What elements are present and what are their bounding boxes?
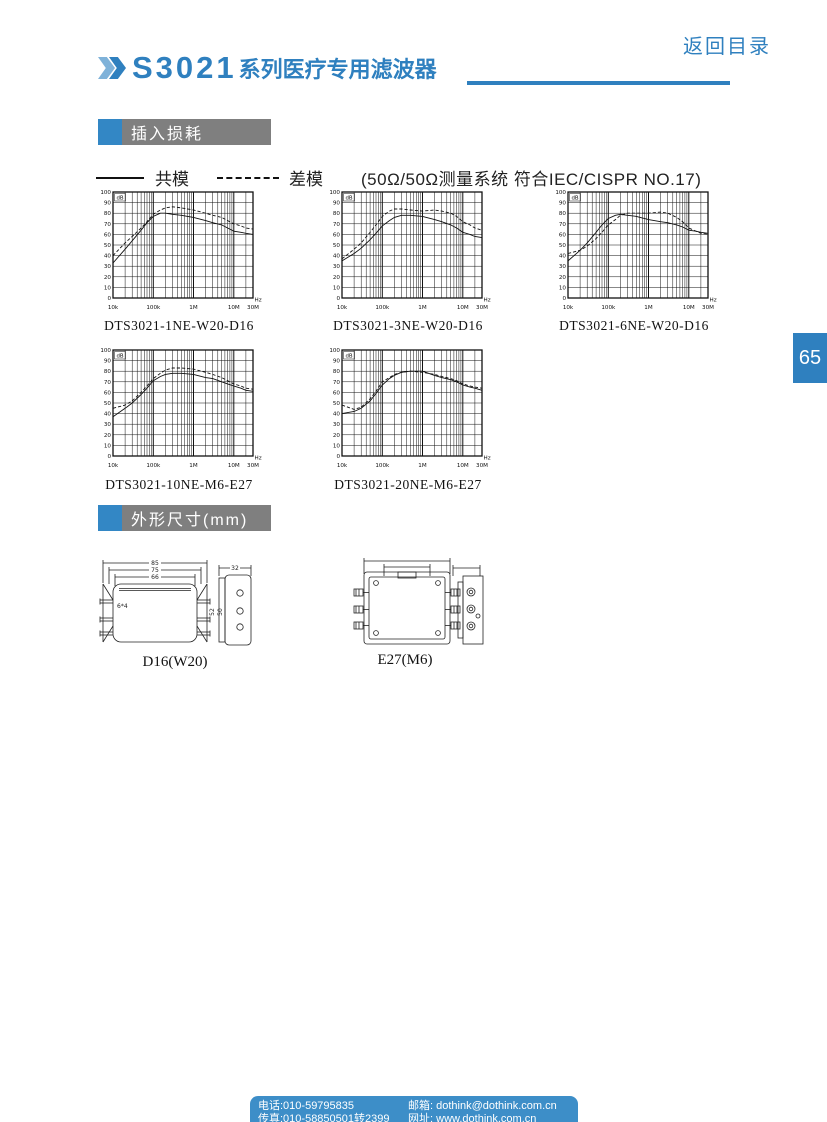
svg-text:10k: 10k [108, 305, 119, 311]
svg-text:20: 20 [333, 433, 341, 439]
svg-text:100k: 100k [375, 305, 390, 311]
solid-line-swatch [96, 177, 144, 179]
svg-text:dB: dB [116, 196, 123, 202]
svg-text:10k: 10k [337, 463, 348, 469]
svg-text:30: 30 [104, 264, 112, 270]
svg-text:30M: 30M [476, 305, 488, 311]
svg-text:Hz: Hz [255, 456, 262, 462]
svg-text:20: 20 [104, 433, 112, 439]
svg-text:32: 32 [231, 565, 239, 572]
svg-text:30: 30 [333, 422, 341, 428]
header-underline [467, 81, 730, 85]
legend-differential-mode-label: 差模 [289, 165, 323, 190]
footer-web-label: 网址: [408, 1113, 433, 1122]
footer-email-label: 邮箱: [408, 1100, 433, 1112]
svg-text:10: 10 [104, 443, 112, 449]
svg-text:10k: 10k [108, 463, 119, 469]
svg-text:80: 80 [333, 211, 341, 217]
page-header: S3021 系列医疗专用滤波器 [98, 50, 437, 86]
svg-text:66: 66 [151, 574, 159, 581]
svg-text:50: 50 [333, 401, 341, 407]
svg-text:40: 40 [333, 254, 341, 260]
svg-text:70: 70 [104, 222, 112, 228]
footer-contact-bar: 电话:010-59795835 传真:010-58850501转2399 邮箱:… [250, 1096, 578, 1122]
svg-text:1M: 1M [189, 305, 198, 311]
page-number-badge: 65 [793, 333, 827, 383]
svg-text:Hz: Hz [484, 456, 491, 462]
section-title: 插入损耗 [122, 119, 271, 145]
svg-text:50: 50 [104, 243, 112, 249]
svg-text:70: 70 [104, 380, 112, 386]
insertion-loss-chart: 0102030405060708090100dB10k100k1M10M30MH… [322, 186, 494, 312]
svg-text:100: 100 [555, 190, 566, 196]
svg-text:Hz: Hz [484, 298, 491, 304]
svg-text:10M: 10M [228, 463, 240, 469]
svg-text:0: 0 [107, 454, 111, 460]
svg-text:80: 80 [104, 211, 112, 217]
svg-text:75: 75 [151, 567, 159, 574]
series-code: S3021 [132, 50, 237, 86]
dashed-line-swatch [217, 177, 279, 179]
chart-caption: DTS3021-20NE-M6-E27 [322, 477, 494, 493]
footer-fax: 传真:010-58850501转2399 [258, 1113, 408, 1122]
svg-text:10k: 10k [563, 305, 574, 311]
svg-text:10M: 10M [228, 305, 240, 311]
svg-text:1M: 1M [644, 305, 653, 311]
svg-text:1M: 1M [418, 463, 427, 469]
dimension-drawing-d16: 85 75 66 6*4 32 [95, 556, 255, 651]
svg-text:30M: 30M [476, 463, 488, 469]
svg-text:90: 90 [333, 201, 341, 207]
svg-text:60: 60 [333, 232, 341, 238]
svg-text:0: 0 [336, 296, 340, 302]
svg-text:10M: 10M [457, 463, 469, 469]
chart-caption: DTS3021-1NE-W20-D16 [93, 318, 265, 334]
svg-text:100: 100 [100, 348, 111, 354]
svg-text:0: 0 [562, 296, 566, 302]
svg-text:85: 85 [151, 560, 159, 567]
svg-text:10: 10 [104, 285, 112, 291]
svg-text:60: 60 [559, 232, 567, 238]
svg-text:100k: 100k [146, 463, 161, 469]
svg-text:40: 40 [333, 412, 341, 418]
svg-text:10M: 10M [683, 305, 695, 311]
svg-text:10: 10 [559, 285, 567, 291]
svg-text:40: 40 [104, 254, 112, 260]
svg-text:52: 52 [209, 608, 216, 616]
insertion-loss-chart: 0102030405060708090100dB10k100k1M10M30MH… [93, 344, 265, 470]
svg-text:6*4: 6*4 [117, 603, 128, 610]
svg-text:50: 50 [217, 608, 224, 616]
svg-text:80: 80 [333, 369, 341, 375]
svg-text:100: 100 [329, 348, 340, 354]
svg-text:50: 50 [559, 243, 567, 249]
svg-text:100: 100 [100, 190, 111, 196]
svg-text:dB: dB [345, 196, 352, 202]
svg-text:0: 0 [107, 296, 111, 302]
svg-text:20: 20 [104, 275, 112, 281]
svg-text:30: 30 [559, 264, 567, 270]
svg-text:20: 20 [559, 275, 567, 281]
drawing-label-d16: D16(W20) [95, 654, 255, 671]
svg-text:60: 60 [104, 232, 112, 238]
insertion-loss-chart: 0102030405060708090100dB10k100k1M10M30MH… [93, 186, 265, 312]
svg-text:10: 10 [333, 285, 341, 291]
drawing-label-e27: E27(M6) [345, 652, 465, 669]
svg-text:30M: 30M [247, 305, 259, 311]
svg-text:30: 30 [333, 264, 341, 270]
svg-text:100k: 100k [601, 305, 616, 311]
svg-text:70: 70 [333, 222, 341, 228]
svg-text:30: 30 [104, 422, 112, 428]
svg-text:20: 20 [333, 275, 341, 281]
chart-caption: DTS3021-10NE-M6-E27 [93, 477, 265, 493]
svg-text:30M: 30M [247, 463, 259, 469]
svg-text:Hz: Hz [255, 298, 262, 304]
svg-text:90: 90 [559, 201, 567, 207]
svg-text:60: 60 [104, 390, 112, 396]
svg-text:60: 60 [333, 390, 341, 396]
svg-text:1M: 1M [189, 463, 198, 469]
bolt-terminals [354, 589, 460, 629]
section-dimensions: 外形尺寸(mm) [98, 505, 271, 531]
svg-text:dB: dB [345, 354, 352, 360]
section-insertion-loss: 插入损耗 [98, 119, 271, 145]
svg-text:80: 80 [104, 369, 112, 375]
section-accent-square [98, 505, 122, 531]
svg-text:dB: dB [116, 354, 123, 360]
svg-text:50: 50 [333, 243, 341, 249]
svg-text:10k: 10k [337, 305, 348, 311]
svg-text:90: 90 [104, 201, 112, 207]
page: 返回目录 S3021 系列医疗专用滤波器 插入损耗 共模 差模 (50Ω/50Ω… [0, 0, 827, 1122]
chart-caption: DTS3021-3NE-W20-D16 [322, 318, 494, 334]
footer-email-row: 邮箱: dothink@dothink.com.cn [408, 1100, 557, 1113]
dimension-drawing-e27 [350, 556, 485, 651]
insertion-loss-chart: 0102030405060708090100dB10k100k1M10M30MH… [322, 344, 494, 470]
svg-text:100: 100 [329, 190, 340, 196]
svg-text:10M: 10M [457, 305, 469, 311]
svg-text:80: 80 [559, 211, 567, 217]
chart-caption: DTS3021-6NE-W20-D16 [548, 318, 720, 334]
section-title: 外形尺寸(mm) [122, 505, 271, 531]
svg-text:100k: 100k [375, 463, 390, 469]
svg-text:Hz: Hz [710, 298, 717, 304]
svg-text:90: 90 [104, 359, 112, 365]
footer-website-link[interactable]: www.dothink.com.cn [436, 1113, 536, 1122]
series-title: 系列医疗专用滤波器 [239, 52, 437, 84]
section-accent-square [98, 119, 122, 145]
svg-text:30M: 30M [702, 305, 714, 311]
svg-text:40: 40 [559, 254, 567, 260]
svg-text:10: 10 [333, 443, 341, 449]
svg-text:90: 90 [333, 359, 341, 365]
svg-text:0: 0 [336, 454, 340, 460]
svg-text:40: 40 [104, 412, 112, 418]
footer-email: dothink@dothink.com.cn [436, 1100, 557, 1112]
svg-text:50: 50 [104, 401, 112, 407]
svg-text:1M: 1M [418, 305, 427, 311]
svg-text:70: 70 [559, 222, 567, 228]
footer-web-row: 网址: www.dothink.com.cn [408, 1113, 557, 1122]
svg-text:dB: dB [571, 196, 578, 202]
insertion-loss-chart: 0102030405060708090100dB10k100k1M10M30MH… [548, 186, 720, 312]
svg-text:100k: 100k [146, 305, 161, 311]
footer-phone: 电话:010-59795835 [258, 1100, 408, 1113]
back-to-toc-link[interactable]: 返回目录 [683, 30, 771, 59]
svg-text:70: 70 [333, 380, 341, 386]
